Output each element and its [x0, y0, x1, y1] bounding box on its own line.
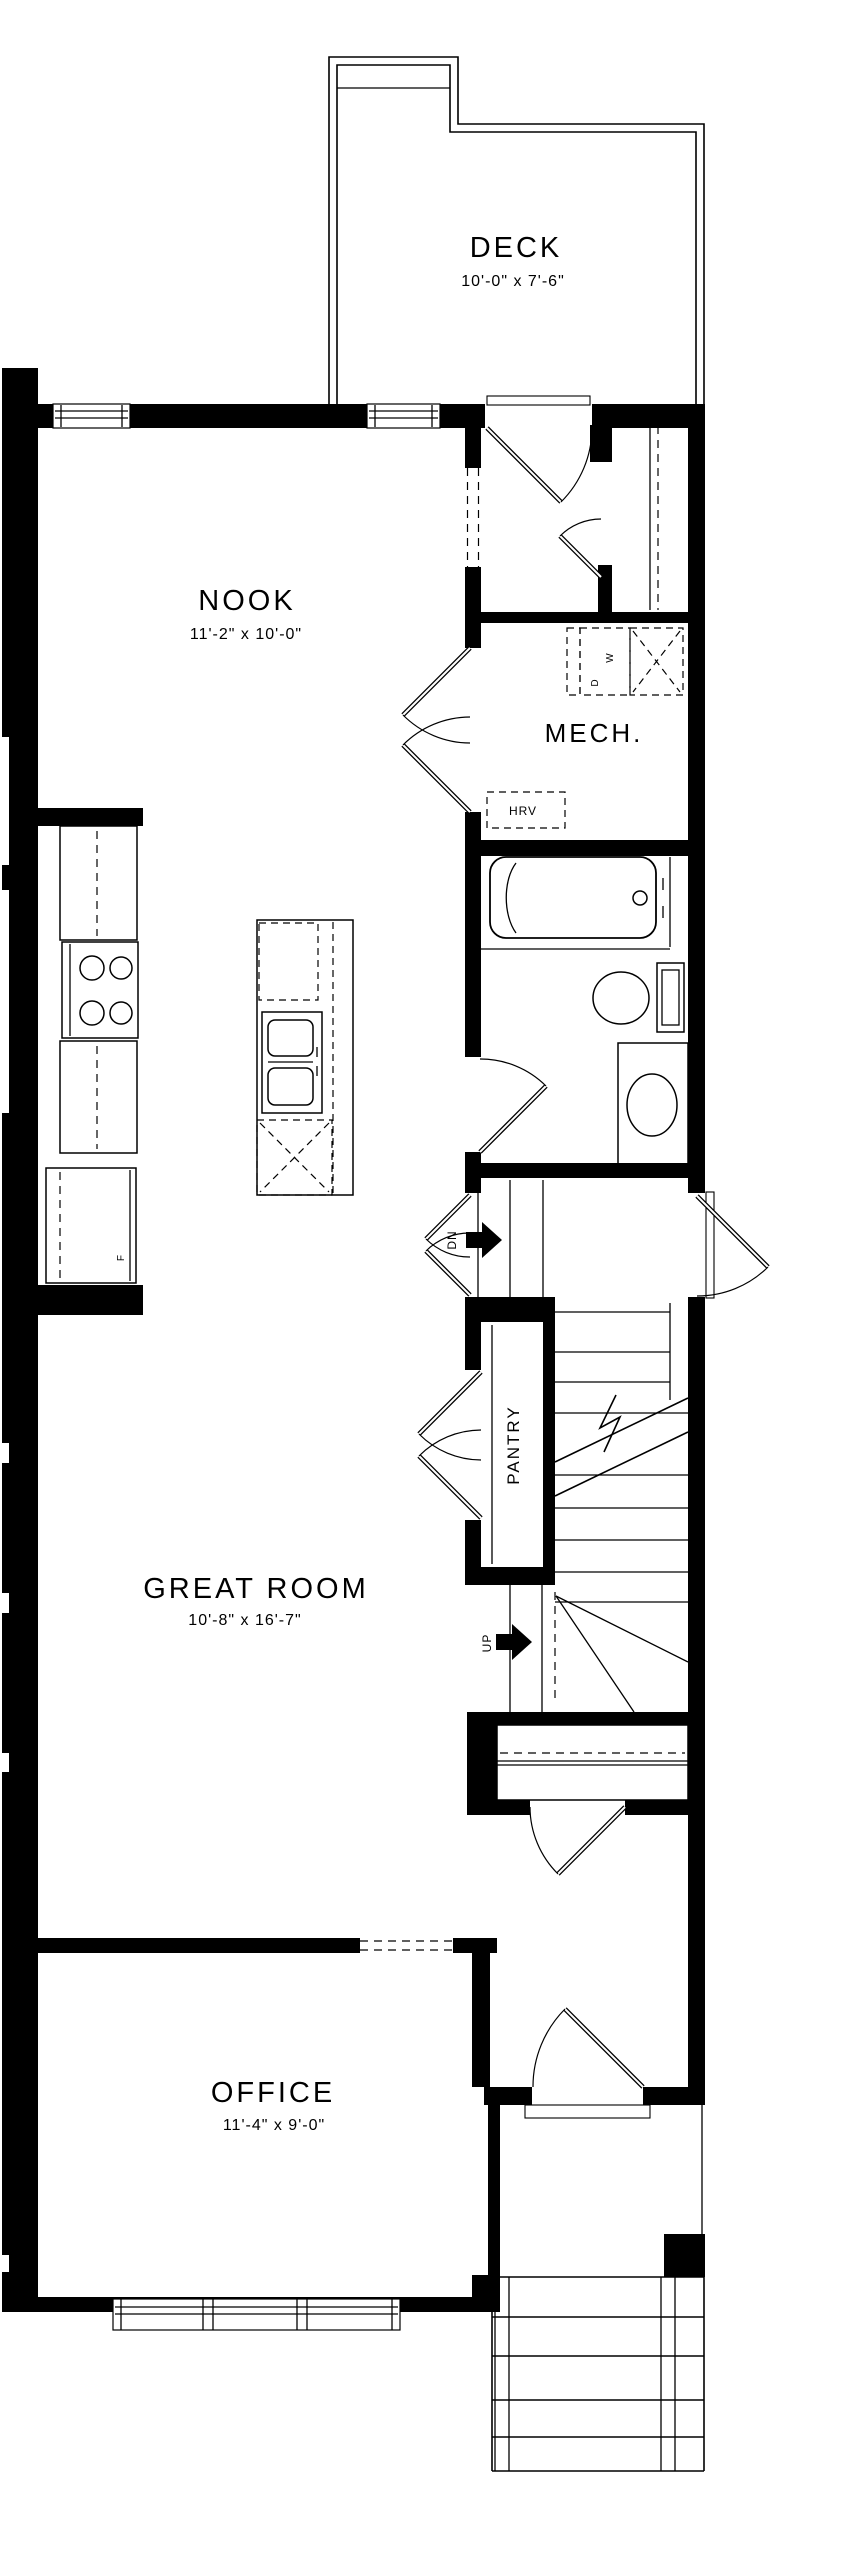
kitchen-island	[257, 920, 353, 1195]
kitchen-counter-lower	[60, 1041, 137, 1153]
room-dims-nook: 11'-2" x 10'-0"	[190, 626, 302, 643]
dryer-label: D	[590, 679, 601, 686]
dishwasher-x-box	[257, 1120, 332, 1195]
room-label-pantry: PANTRY	[504, 1405, 523, 1484]
up-arrow-icon	[496, 1624, 532, 1660]
deck-door-threshold	[487, 396, 590, 405]
floor-plan: DECK 10'-0" x 7'-6" NOOK 11'-2" x 10'-0"…	[0, 0, 853, 2560]
stair-winders	[556, 1596, 688, 1712]
fridge-icon	[46, 1168, 136, 1283]
vanity-sink-icon	[618, 1043, 688, 1165]
up-label: UP	[480, 1634, 494, 1653]
room-label-nook: NOOK	[198, 585, 295, 617]
bathroom-door-icon	[480, 1059, 546, 1152]
pantry-closet	[419, 1325, 492, 1564]
deck-door-icon	[487, 428, 592, 502]
entry-stoop-box	[497, 1725, 688, 1800]
office-window-icon	[113, 2299, 400, 2330]
chute-x-box	[630, 628, 683, 695]
side-entry-door-icon	[697, 1192, 768, 1298]
deck-window-icon	[367, 404, 440, 428]
room-label-office: OFFICE	[211, 2077, 335, 2109]
down-label: DN	[445, 1230, 459, 1249]
front-entry-door-icon	[525, 2009, 650, 2118]
kitchen-counter-upper	[60, 826, 137, 940]
washer-box	[567, 628, 580, 695]
down-arrow-icon	[466, 1222, 502, 1258]
nook-window-icon	[53, 404, 130, 428]
washer-label: W	[605, 653, 616, 663]
room-dims-great-room: 10'-8" x 16'-7"	[188, 1612, 301, 1629]
walls	[2, 368, 705, 2312]
bathroom	[480, 857, 688, 1165]
toilet-icon	[593, 963, 684, 1032]
pantry-double-doors-icon	[419, 1372, 481, 1518]
stair-break-symbol	[555, 1395, 688, 1496]
room-dims-deck: 10'-0" x 7'-6"	[461, 273, 565, 290]
mech-double-doors-icon	[403, 648, 470, 812]
room-label-great-room: GREAT ROOM	[143, 1573, 369, 1605]
deck-outline	[329, 57, 704, 405]
closet-door-icon	[560, 519, 601, 577]
island-cabinet-dashed	[259, 923, 318, 1000]
stove-icon	[62, 942, 138, 1038]
room-label-deck: DECK	[470, 232, 563, 264]
stair-landing	[426, 1180, 768, 1298]
porch-steps	[492, 2277, 704, 2471]
mudroom	[468, 426, 659, 610]
fridge-label: F	[116, 1255, 127, 1261]
room-label-mech: MECH.	[545, 718, 644, 748]
room-dims-office: 11'-4" x 9'-0"	[223, 2117, 325, 2134]
labels: DECK 10'-0" x 7'-6" NOOK 11'-2" x 10'-0"…	[116, 232, 643, 2134]
bathtub-icon	[481, 857, 670, 949]
double-sink-icon	[262, 1012, 322, 1113]
hrv-label: HRV	[509, 804, 537, 818]
main-stair	[496, 1303, 688, 1712]
office-room	[113, 1941, 453, 2330]
foyer-door-icon	[530, 1807, 625, 1874]
floor-plan-drawing: DECK 10'-0" x 7'-6" NOOK 11'-2" x 10'-0"…	[0, 0, 853, 2560]
